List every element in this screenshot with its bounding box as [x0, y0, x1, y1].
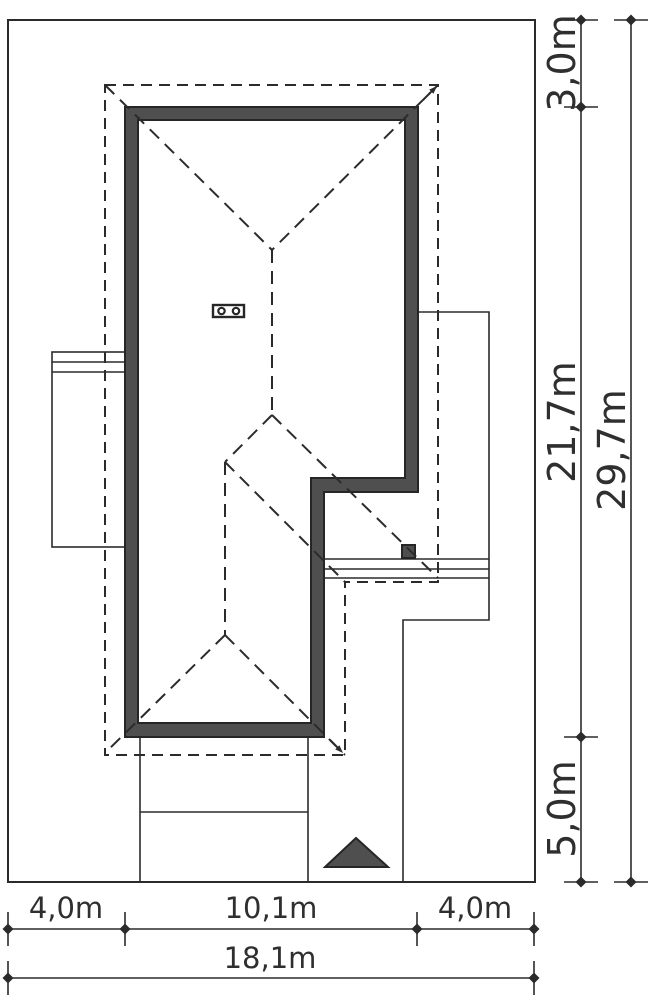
- dim-label-front-setback: 3,0m: [540, 14, 584, 111]
- left-terrace: [52, 352, 125, 547]
- chimney-flue: [218, 308, 224, 314]
- site-plan: 3,0m 21,7m 5,0m 29,7m 4,0m 10,1m 4,0m 18…: [0, 0, 651, 1000]
- dimension-tick: [120, 912, 131, 946]
- dimension-tick: [614, 15, 648, 26]
- arrow-shaft: [423, 93, 430, 100]
- house-walls: [125, 107, 418, 737]
- plot-boundary: [8, 20, 535, 882]
- dim-label-plot-width: 18,1m: [224, 941, 317, 975]
- arrow-shaft: [330, 740, 336, 746]
- dimensions-right: 3,0m 21,7m 5,0m 29,7m: [540, 14, 648, 887]
- dimension-tick: [3, 961, 14, 995]
- dimensions-bottom: 4,0m 10,1m 4,0m 18,1m: [3, 891, 540, 995]
- dimension-tick: [412, 912, 423, 946]
- dimension-tick: [564, 877, 598, 888]
- terrace-outline: [52, 352, 125, 547]
- dimension-tick: [529, 961, 540, 995]
- dim-label-left-setback: 4,0m: [29, 891, 103, 925]
- ridge-jog-line: [225, 415, 272, 462]
- dimension-tick: [3, 912, 14, 946]
- roof-hatch-square: [402, 545, 415, 558]
- chimney: [213, 305, 244, 317]
- roof-eave-outline: [105, 85, 438, 755]
- roof-slope-arrow-top-right: [423, 86, 437, 100]
- dimension-tick: [614, 877, 648, 888]
- entrance-arrow: [325, 838, 388, 867]
- roof-hip-ridge-lines: [105, 85, 438, 755]
- dimension-tick: [564, 732, 598, 743]
- dim-label-house-length: 21,7m: [540, 361, 584, 483]
- chimney-flue: [233, 308, 239, 314]
- dimension-tick: [529, 912, 540, 946]
- dim-label-house-width: 10,1m: [225, 891, 318, 925]
- dim-label-plot-depth: 29,7m: [590, 389, 634, 511]
- dim-label-right-setback: 4,0m: [438, 891, 512, 925]
- site-plan-drawing: 3,0m 21,7m 5,0m 29,7m 4,0m 10,1m 4,0m 18…: [0, 0, 651, 1000]
- dim-label-rear-setback: 5,0m: [540, 760, 584, 857]
- driveway: [140, 737, 308, 882]
